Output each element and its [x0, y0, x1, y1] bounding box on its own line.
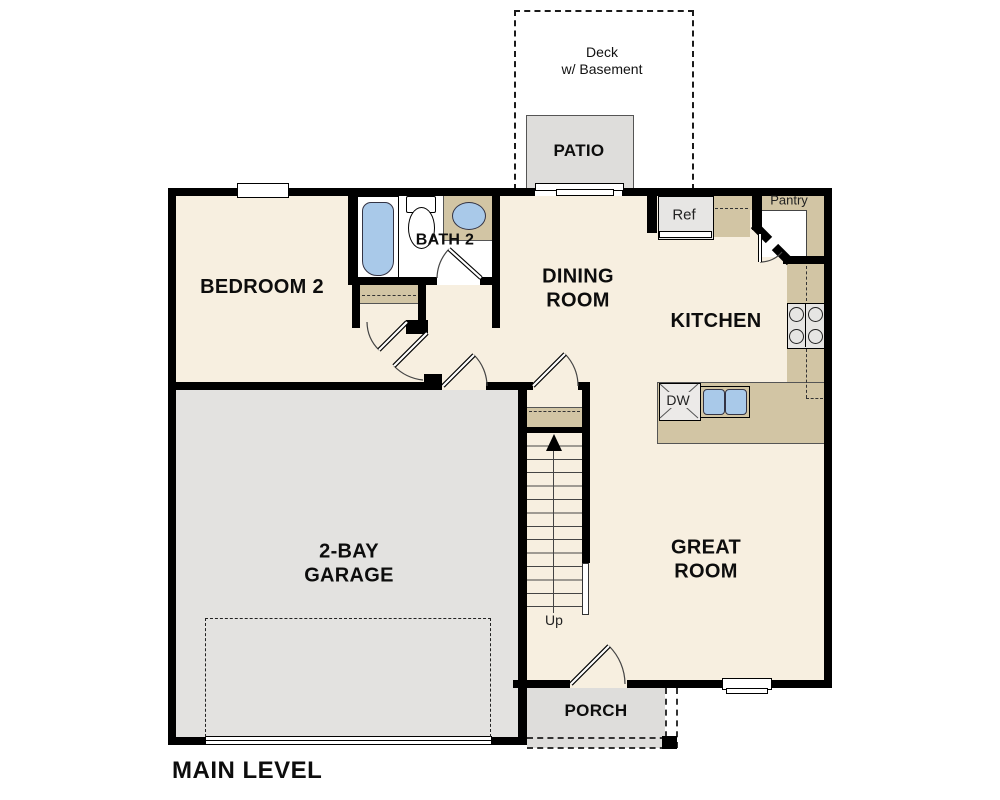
stove-burner-4: [808, 329, 823, 344]
bath2-label: BATH 2: [416, 232, 474, 251]
porch-dashed-bottom-inner: [527, 737, 676, 739]
greatroom-wall-bottom-2: [627, 680, 722, 688]
deck-label-line2: w/ Basement: [519, 61, 685, 78]
refrigerator-label: Ref: [672, 207, 695, 224]
porch-dashed-bottom-outer: [527, 747, 676, 749]
patio-label: PATIO: [554, 141, 605, 161]
staircase-handrail: [582, 563, 589, 615]
exterior-wall-top: [168, 188, 535, 196]
bedroom2-closet-wall-left: [352, 283, 360, 328]
bath2-sink-basin: [452, 202, 486, 230]
bedroom2-label: BEDROOM 2: [200, 276, 324, 300]
garage-label-line2: GARAGE: [304, 564, 394, 588]
stairwell-wall-right: [582, 390, 590, 563]
kitchen-sink-bowl-left: [703, 389, 725, 415]
pantry-interior: [762, 210, 807, 257]
bedroom2-closet-wall-right: [418, 283, 426, 322]
stairwell-wall-top-right: [578, 382, 590, 390]
plan-title: MAIN LEVEL: [172, 757, 322, 785]
great-room-label: GREAT ROOM: [671, 536, 741, 583]
dining-room-label: DINING ROOM: [542, 265, 614, 312]
stove-divider: [805, 303, 806, 347]
exterior-wall-right: [824, 188, 832, 688]
ref-side-counter: [713, 196, 750, 237]
staircase-treads: [527, 433, 582, 613]
stairwell-wall-left: [518, 382, 527, 745]
bath2-hall-wall: [492, 196, 500, 328]
stove-burner-3: [789, 329, 804, 344]
deck-label: Deck w/ Basement: [519, 44, 685, 78]
bedroom2-closet-rod-dash: [362, 295, 416, 296]
bath2-door-stub: [480, 277, 492, 285]
garage-wall-bottom-left: [168, 737, 207, 745]
garage-wall-top-1: [168, 382, 442, 390]
dining-room-label-line2: ROOM: [542, 289, 614, 313]
refrigerator-door: [659, 231, 712, 238]
great-room-label-line1: GREAT: [671, 536, 741, 560]
dishwasher-label: DW: [665, 392, 690, 408]
porch-post: [662, 736, 677, 749]
pantry-wall-bottom: [783, 256, 824, 264]
floor-plan: Deck w/ Basement PATIO: [0, 0, 1000, 800]
entry-closet-rod-dash: [529, 411, 580, 412]
pantry-right-counter: [806, 210, 824, 256]
garage-door-panel-inner: [205, 740, 492, 745]
exterior-wall-left: [168, 188, 176, 745]
kitchen-label: KITCHEN: [671, 310, 762, 334]
garage-door-swing-dash-top: [205, 618, 491, 619]
ref-counter-dash: [715, 208, 748, 209]
garage-door-swing-dash-right: [490, 618, 491, 737]
bathtub-basin: [362, 202, 394, 276]
garage-door-stub: [424, 374, 442, 382]
garage-label-line1: 2-BAY: [304, 540, 394, 564]
greatroom-window-sill: [726, 688, 768, 694]
cabinet-dash-lower: [806, 349, 807, 398]
patio-slider-panel-inner: [556, 189, 614, 196]
bedroom2-closet-shelf: [360, 283, 418, 304]
cabinet-dash-upper: [806, 266, 807, 301]
pantry-stub-wall: [752, 196, 762, 230]
porch-label: PORCH: [565, 701, 628, 721]
entry-closet-wall-bottom: [527, 427, 582, 433]
staircase-center-line: [553, 447, 554, 613]
deck-label-line1: Deck: [519, 44, 685, 61]
stove-burner-1: [789, 307, 804, 322]
stove-burner-2: [808, 307, 823, 322]
bedroom2-window: [237, 183, 289, 198]
pantry-label: Pantry: [770, 193, 808, 208]
kitchen-sink-bowl-right: [725, 389, 747, 415]
cabinet-dash-horizontal: [806, 398, 823, 399]
garage-door-swing-dash-left: [205, 618, 206, 737]
kitchen-dining-stub-wall: [647, 196, 657, 233]
bedroom2-bath2-wall: [348, 196, 357, 283]
garage-label: 2-BAY GARAGE: [304, 540, 394, 587]
great-room-label-line2: ROOM: [671, 560, 741, 584]
dining-room-label-line1: DINING: [542, 265, 614, 289]
greatroom-wall-bottom-3: [770, 680, 832, 688]
bedroom2-door-hinge-block: [406, 320, 428, 334]
stairs-up-label: Up: [545, 612, 563, 628]
staircase-up-arrow-icon: [546, 434, 562, 451]
